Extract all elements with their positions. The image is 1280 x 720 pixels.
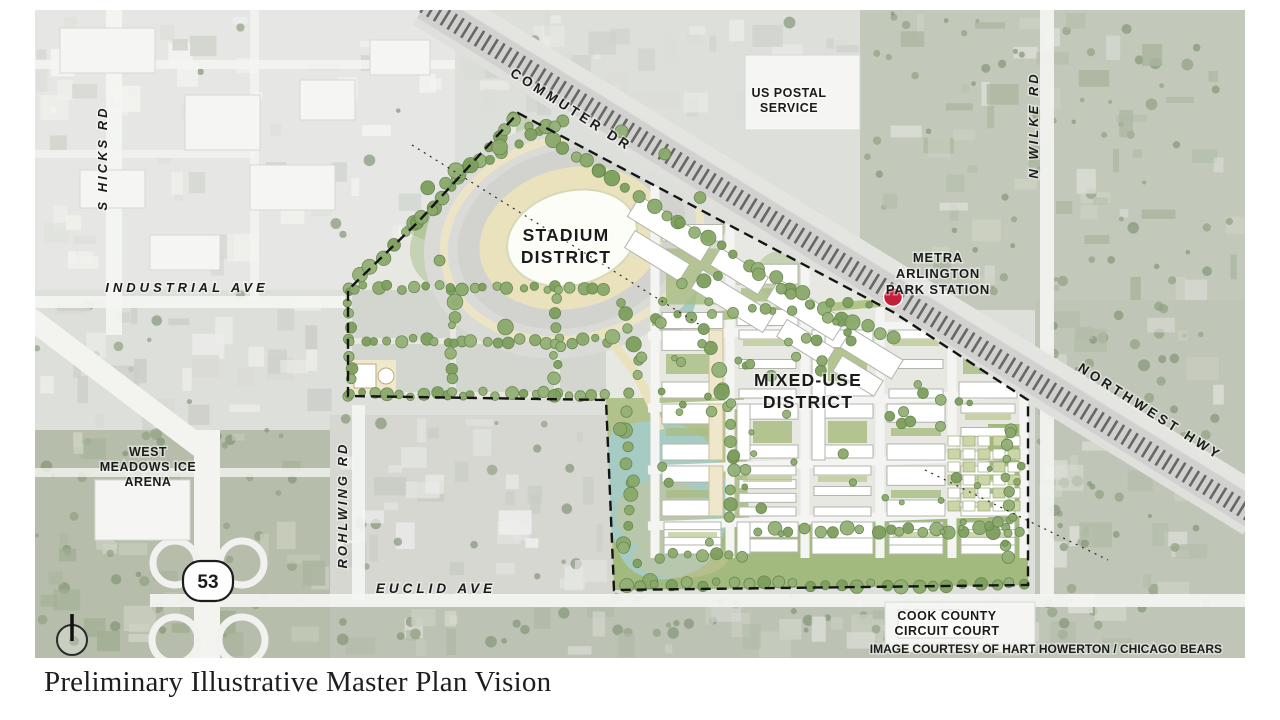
page-title: Preliminary Illustrative Master Plan Vis… (44, 666, 551, 699)
slide: S HICKS RD INDUSTRIAL AVE ROHLWING RD EU… (0, 0, 1280, 720)
round-feature (378, 368, 394, 384)
west-meadows-label-line2: MEADOWS ICE (100, 460, 196, 474)
hicks-rd-label: S HICKS RD (95, 105, 110, 210)
master-plan-map: S HICKS RD INDUSTRIAL AVE ROHLWING RD EU… (0, 0, 1280, 660)
image-credit: IMAGE COURTESY OF HART HOWERTON / CHICAG… (870, 642, 1222, 656)
us-postal-label-line1: US POSTAL (751, 86, 826, 100)
west-meadows-label-line3: ARENA (125, 475, 172, 489)
metra-label-line1: METRA (913, 250, 963, 265)
mixed-use-district-label-line1: MIXED-USE (754, 370, 862, 390)
west-meadows-label-line1: WEST (129, 445, 167, 459)
us-postal-label-line2: SERVICE (760, 101, 818, 115)
stadium-district-label-line2: DISTRICT (521, 247, 611, 267)
cook-county-label-line2: CIRCUIT COURT (894, 624, 999, 638)
wilke-rd-label: N WILKE RD (1026, 71, 1041, 178)
mixed-use-district-label-line2: DISTRICT (763, 392, 853, 412)
margin-right (1245, 0, 1280, 660)
margin-top (0, 0, 1280, 10)
industrial-ave-label: INDUSTRIAL AVE (105, 280, 268, 295)
margin-bottom (0, 658, 1280, 660)
stadium-district-label-line1: STADIUM (523, 225, 610, 245)
euclid-ave-label: EUCLID AVE (376, 581, 496, 596)
route-53-number: 53 (197, 572, 218, 593)
margin-left (0, 0, 35, 660)
cook-county-label-line1: COOK COUNTY (897, 609, 996, 623)
metra-label-line2: ARLINGTON (896, 266, 980, 281)
metra-label-line3: PARK STATION (886, 282, 990, 297)
rohlwing-rd-label: ROHLWING RD (335, 442, 350, 569)
route-53-shield: 53 (183, 561, 233, 601)
